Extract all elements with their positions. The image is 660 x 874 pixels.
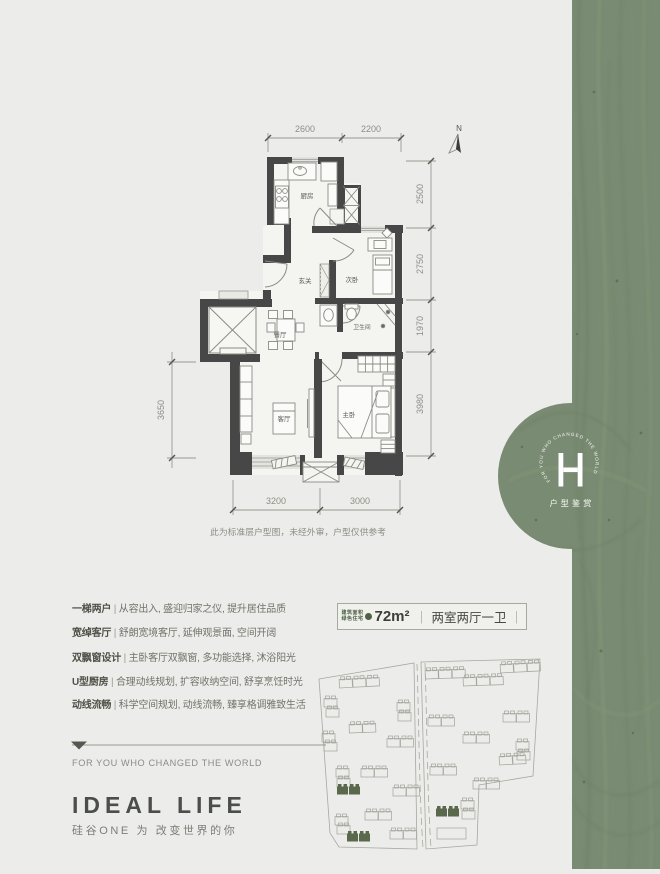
svg-text:3650: 3650 [156, 400, 166, 420]
svg-text:1970: 1970 [415, 316, 425, 336]
svg-text:卫生间: 卫生间 [353, 323, 371, 331]
svg-text:3980: 3980 [415, 394, 425, 414]
svg-text:2750: 2750 [415, 254, 425, 274]
svg-text:玄关: 玄关 [299, 276, 313, 285]
svg-text:餐厅: 餐厅 [274, 330, 288, 339]
svg-text:3200: 3200 [266, 496, 286, 506]
svg-text:厨房: 厨房 [301, 191, 314, 200]
svg-text:N: N [456, 124, 462, 133]
svg-text:3000: 3000 [350, 496, 370, 506]
svg-text:主卧: 主卧 [343, 410, 357, 419]
svg-text:2600: 2600 [295, 124, 315, 134]
svg-text:此为标准层户型图，未经外审，户型仅供参考: 此为标准层户型图，未经外审，户型仅供参考 [210, 526, 386, 537]
svg-text:客厅: 客厅 [278, 414, 292, 423]
svg-text:2500: 2500 [415, 184, 425, 204]
svg-text:户型鉴赏: 户型鉴赏 [550, 498, 595, 508]
svg-text:2200: 2200 [361, 124, 381, 134]
svg-text:次卧: 次卧 [346, 275, 360, 284]
